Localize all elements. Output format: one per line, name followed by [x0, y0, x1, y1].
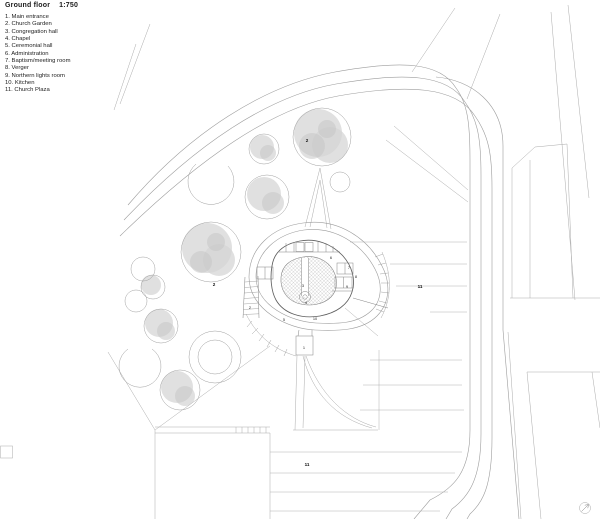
legend: Ground floor1:750 1. Main entrance 2. Ch… [5, 2, 78, 95]
plan-scale: 1:750 [59, 2, 78, 9]
legend-item: 9. Northern lights room [5, 73, 78, 80]
tree-icon [141, 275, 165, 299]
room-label-8: 8 [355, 274, 357, 279]
room-label-6: 6 [330, 255, 332, 260]
area-label-plaza-south: 11 [305, 462, 310, 467]
legend-item: 6. Administration [5, 51, 78, 58]
legend-item: 4. Chapel [5, 36, 78, 43]
planting-circle [119, 349, 161, 387]
site-plan-drawing: Ground floor1:750 1. Main entrance 2. Ch… [0, 0, 600, 519]
room-label-1: 1 [303, 345, 305, 350]
tree-icon [245, 175, 289, 219]
legend-item: 5. Ceremonial hall [5, 43, 78, 50]
legend-item: 8. Verger [5, 65, 78, 72]
plan-title-text: Ground floor [5, 2, 50, 9]
church-building [243, 222, 389, 356]
planting-circle [131, 257, 155, 281]
site-plan-svg: 1 2 3 4 5 6 7 8 9 10 2 2 11 11 [0, 0, 600, 519]
tree-icon [160, 370, 200, 410]
legend-item: 7. Baptism/meeting room [5, 58, 78, 65]
planting-circle [125, 290, 147, 312]
room-label-7: 7 [348, 265, 350, 270]
tree-icon [181, 222, 241, 282]
planting-circle [189, 331, 241, 383]
plan-title: Ground floor1:750 [5, 2, 78, 9]
room-label-2: 2 [249, 305, 251, 310]
hall-aisle [302, 258, 309, 297]
legend-item: 10. Kitchen [5, 80, 78, 87]
room-label-5: 5 [283, 317, 285, 322]
legend-items: 1. Main entrance 2. Church Garden 3. Con… [5, 14, 78, 95]
legend-item: 11. Church Plaza [5, 87, 78, 94]
entrance-forecourt [293, 355, 378, 430]
area-label-garden-top: 2 [306, 138, 309, 143]
ring-road [114, 5, 589, 519]
legend-item: 1. Main entrance [5, 14, 78, 21]
area-label-plaza-east: 11 [418, 284, 423, 289]
tree-icon [293, 108, 351, 166]
planting-circle [330, 172, 350, 192]
spire-path [305, 168, 331, 229]
legend-item: 2. Church Garden [5, 21, 78, 28]
north-arrow-icon [580, 503, 591, 514]
room-label-9: 9 [346, 284, 348, 289]
area-label-garden-west: 2 [213, 282, 216, 287]
tree-icon [144, 309, 178, 343]
room-label-3: 3 [302, 283, 304, 288]
planting-circle [198, 340, 232, 374]
legend-item: 3. Congregation hall [5, 29, 78, 36]
site-plots [1, 144, 600, 519]
tree-icon [249, 134, 279, 164]
